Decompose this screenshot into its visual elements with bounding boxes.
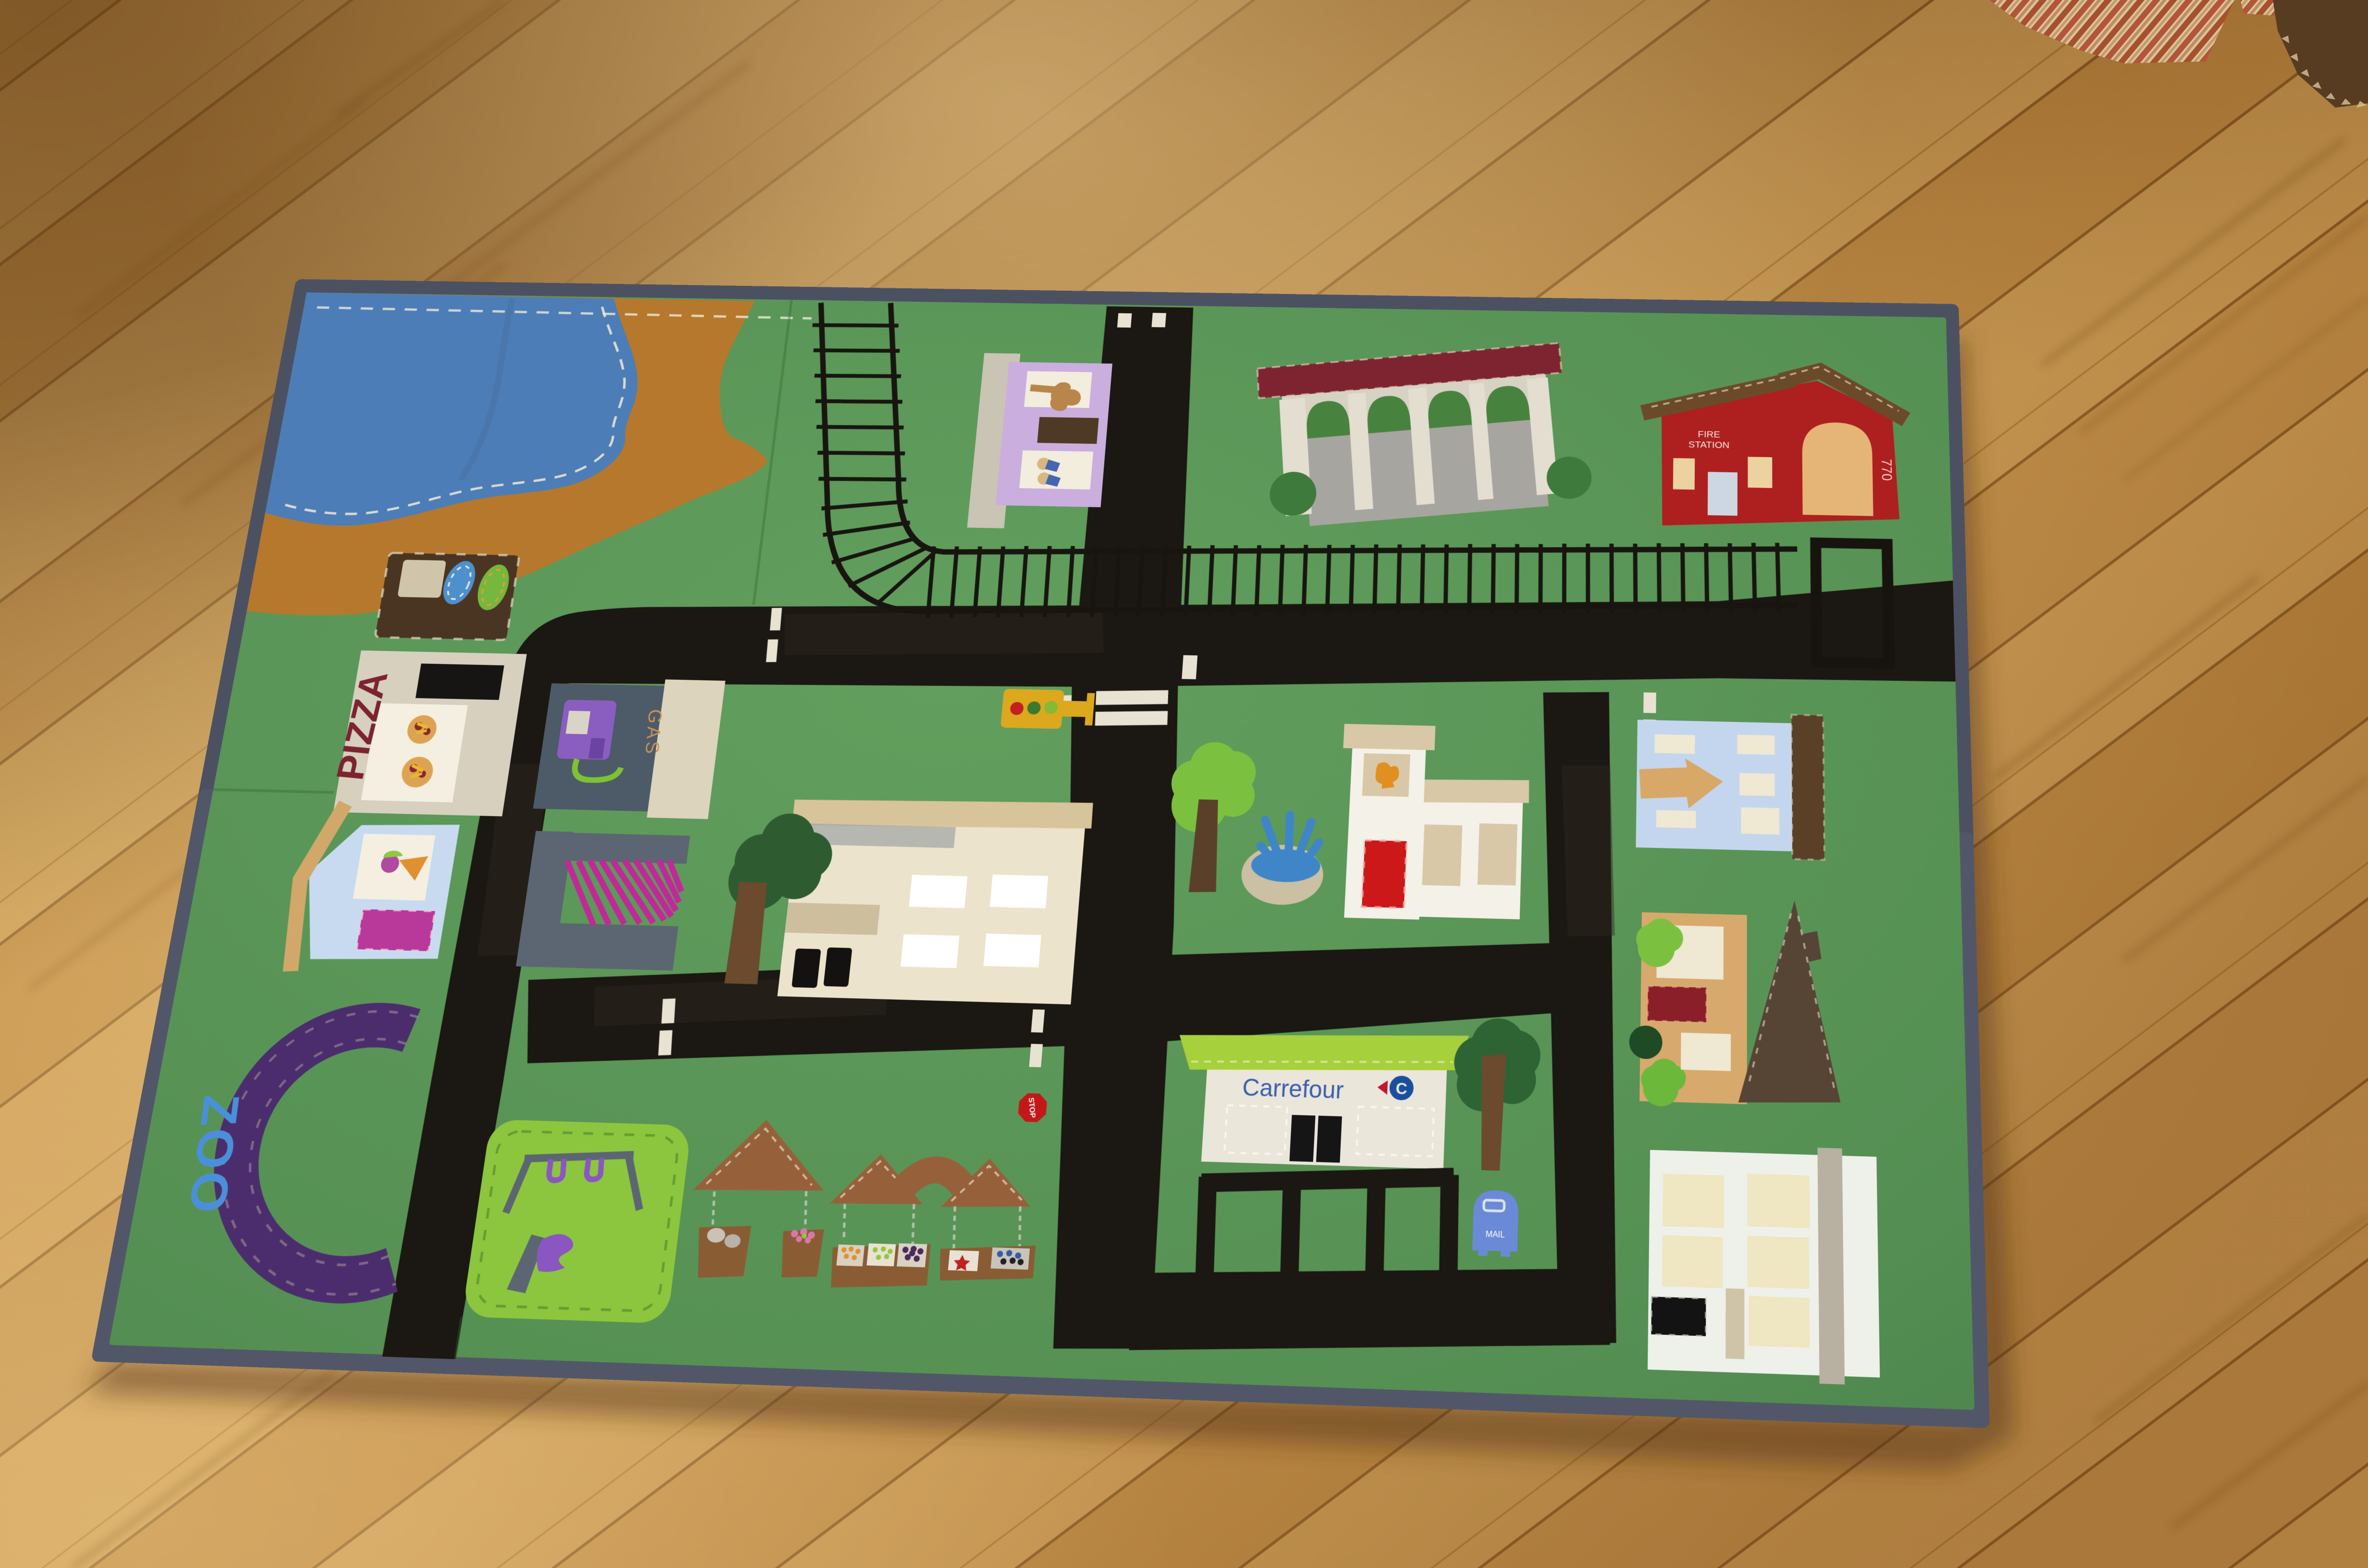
svg-text:Carrefour: Carrefour [1242, 1073, 1344, 1103]
svg-text:STATION: STATION [1689, 439, 1730, 450]
svg-text:FIRE: FIRE [1698, 429, 1720, 440]
svg-text:MAIL: MAIL [1486, 1229, 1505, 1239]
svg-text:770: 770 [1878, 459, 1895, 481]
svg-text:GAS: GAS [641, 709, 666, 757]
svg-text:STOP: STOP [1027, 1097, 1037, 1118]
svg-text:C: C [1395, 1079, 1408, 1098]
